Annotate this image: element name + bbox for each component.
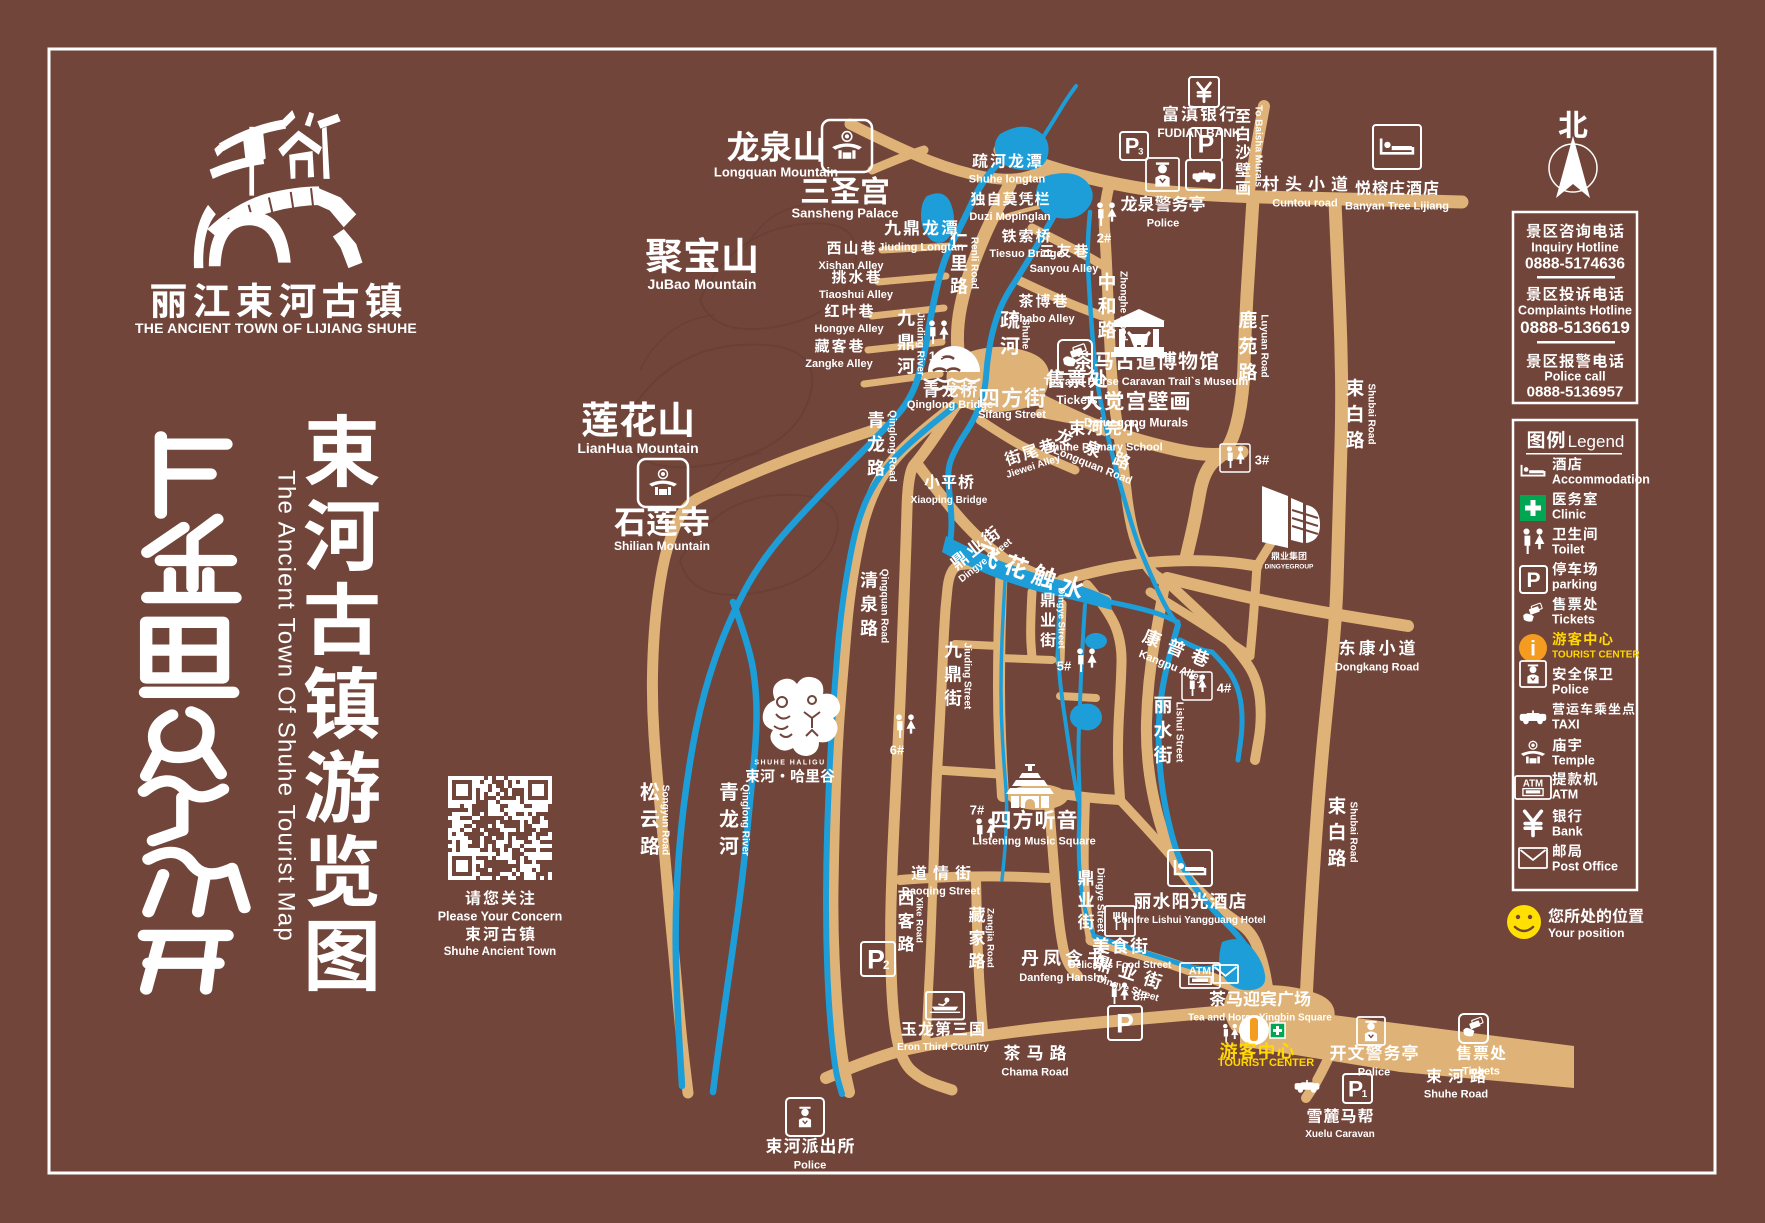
svg-text:Longquan Mountain: Longquan Mountain — [714, 165, 838, 180]
svg-text:Jiuding River: Jiuding River — [915, 312, 926, 375]
svg-text:Chama Road: Chama Road — [1001, 1066, 1068, 1078]
svg-text:Shilian Mountain: Shilian Mountain — [614, 539, 710, 553]
svg-text:2: 2 — [883, 960, 889, 972]
svg-text:To Baisha Murals: To Baisha Murals — [1253, 105, 1264, 187]
svg-text:P: P — [1198, 131, 1215, 159]
svg-text:Post Office: Post Office — [1552, 859, 1618, 873]
svg-text:Qinglong River: Qinglong River — [740, 784, 751, 856]
svg-text:Police: Police — [1147, 217, 1179, 229]
svg-text:Dingye Street: Dingye Street — [1095, 868, 1106, 933]
svg-text:Danfeng Hanshu: Danfeng Hanshu — [1019, 972, 1106, 984]
svg-text:i: i — [1530, 637, 1536, 660]
svg-text:Duzi Mopinglan: Duzi Mopinglan — [969, 211, 1051, 223]
svg-text:parking: parking — [1552, 577, 1597, 591]
svg-text:Renli Road: Renli Road — [969, 237, 980, 289]
svg-text:Your position: Your position — [1548, 926, 1624, 940]
svg-text:The Ancient Town Of Shuhe Tour: The Ancient Town Of Shuhe Tourist Map — [273, 470, 300, 942]
svg-text:THE ANCIENT TOWN OF LIJIANG SH: THE ANCIENT TOWN OF LIJIANG SHUHE — [135, 320, 417, 336]
svg-text:Temple: Temple — [1552, 753, 1595, 767]
svg-text:JuBao Mountain: JuBao Mountain — [648, 276, 757, 292]
svg-text:Zangjia Road: Zangjia Road — [985, 908, 996, 968]
svg-text:Police: Police — [1552, 682, 1589, 696]
svg-text:Sansheng Palace: Sansheng Palace — [792, 206, 899, 221]
svg-text:Sifang Street: Sifang Street — [978, 409, 1046, 421]
svg-text:0888-5136957: 0888-5136957 — [1527, 383, 1624, 400]
svg-text:Xuelu Caravan: Xuelu Caravan — [1305, 1129, 1374, 1140]
svg-text:Shubai Road: Shubai Road — [1366, 383, 1377, 444]
svg-text:SHUHE HALIGU: SHUHE HALIGU — [754, 759, 825, 766]
svg-text:TOURIST CENTER: TOURIST CENTER — [1552, 650, 1640, 661]
svg-text:1#: 1# — [929, 349, 944, 364]
svg-text:Shuhe longtan: Shuhe longtan — [969, 174, 1046, 186]
svg-text:Sanyou Alley: Sanyou Alley — [1030, 263, 1100, 275]
svg-text:Songyun Road: Songyun Road — [660, 785, 671, 856]
svg-text:1: 1 — [1362, 1089, 1368, 1100]
svg-text:Accommodation: Accommodation — [1552, 472, 1650, 486]
svg-text:5#: 5# — [1057, 659, 1072, 674]
svg-text:Toilet: Toilet — [1552, 542, 1585, 556]
svg-text:TAXI: TAXI — [1552, 717, 1580, 731]
svg-text:P: P — [1116, 1008, 1134, 1038]
svg-text:DINGYEGROUP: DINGYEGROUP — [1265, 563, 1314, 570]
svg-text:Tiesuo Bridge: Tiesuo Bridge — [989, 248, 1062, 260]
svg-text:Shubai Road: Shubai Road — [1348, 801, 1359, 862]
svg-text:Eron Third Country: Eron Third Country — [897, 1042, 989, 1053]
svg-text:ATM: ATM — [1523, 778, 1543, 789]
svg-text:Tickets: Tickets — [1552, 612, 1595, 626]
svg-text:Dongkang Road: Dongkang Road — [1335, 661, 1419, 673]
svg-text:Complaints Hotline: Complaints Hotline — [1518, 303, 1632, 317]
svg-text:Legend: Legend — [1568, 432, 1625, 451]
svg-text:Shuhe: Shuhe — [1020, 319, 1031, 350]
svg-text:3: 3 — [1138, 146, 1143, 157]
svg-text:Bank: Bank — [1552, 824, 1583, 838]
svg-text:0888-5136619: 0888-5136619 — [1520, 318, 1630, 337]
svg-text:P: P — [1526, 569, 1540, 592]
svg-text:Qingquan Road: Qingquan Road — [879, 569, 890, 643]
svg-text:Luyuan Road: Luyuan Road — [1259, 314, 1270, 377]
svg-text:Banyan Tree Lijiang: Banyan Tree Lijiang — [1345, 201, 1449, 213]
svg-text:Lishui Street: Lishui Street — [1174, 702, 1185, 763]
svg-text:Hongye Alley: Hongye Alley — [814, 323, 884, 335]
svg-text:Zhonghe Road: Zhonghe Road — [1118, 271, 1129, 341]
svg-text:ATM: ATM — [1189, 965, 1211, 977]
svg-text:Xike Road: Xike Road — [914, 897, 925, 943]
svg-text:Conifre Lishui Yangguang Hotel: Conifre Lishui Yangguang Hotel — [1114, 915, 1266, 926]
svg-text:Shuhe Ancient Town: Shuhe Ancient Town — [444, 946, 556, 958]
svg-text:Jiuding Street: Jiuding Street — [962, 643, 973, 710]
svg-text:Cuntou road: Cuntou road — [1272, 197, 1337, 209]
svg-text:0888-5174636: 0888-5174636 — [1525, 255, 1625, 272]
svg-text:Xiaoping Bridge: Xiaoping Bridge — [911, 495, 988, 506]
svg-text:4#: 4# — [1217, 681, 1232, 696]
svg-text:Please Your Concern: Please Your Concern — [438, 909, 563, 923]
svg-text:Qinglong Road: Qinglong Road — [887, 410, 898, 482]
svg-text:LianHua Mountain: LianHua Mountain — [577, 440, 698, 456]
svg-text:Listening Music Square: Listening Music Square — [972, 835, 1095, 847]
svg-text:TOURIST CENTER: TOURIST CENTER — [1218, 1057, 1314, 1069]
svg-text:Dingye Street: Dingye Street — [1056, 587, 1067, 649]
svg-text:2#: 2# — [1097, 231, 1112, 246]
svg-text:Jiuding Longtan: Jiuding Longtan — [878, 241, 964, 253]
svg-text:Zangke Alley: Zangke Alley — [805, 358, 873, 370]
svg-text:Clinic: Clinic — [1552, 507, 1586, 521]
svg-text:3#: 3# — [1255, 453, 1270, 468]
svg-text:Inquiry Hotline: Inquiry Hotline — [1531, 240, 1619, 254]
svg-text:Delicious Food Street: Delicious Food Street — [1069, 960, 1172, 971]
svg-text:Shuhe Road: Shuhe Road — [1424, 1089, 1488, 1101]
svg-text:ATM: ATM — [1552, 787, 1578, 801]
svg-text:Tea and Horse Caravan Trail`s: Tea and Horse Caravan Trail`s Museum — [1044, 376, 1249, 388]
svg-text:Tiaoshui Alley: Tiaoshui Alley — [819, 289, 894, 301]
svg-text:Police call: Police call — [1544, 369, 1605, 383]
svg-text:Daoqing Street: Daoqing Street — [902, 886, 981, 898]
svg-text:Police: Police — [794, 1159, 826, 1171]
svg-text:6#: 6# — [890, 743, 905, 758]
svg-text:7#: 7# — [970, 803, 985, 818]
